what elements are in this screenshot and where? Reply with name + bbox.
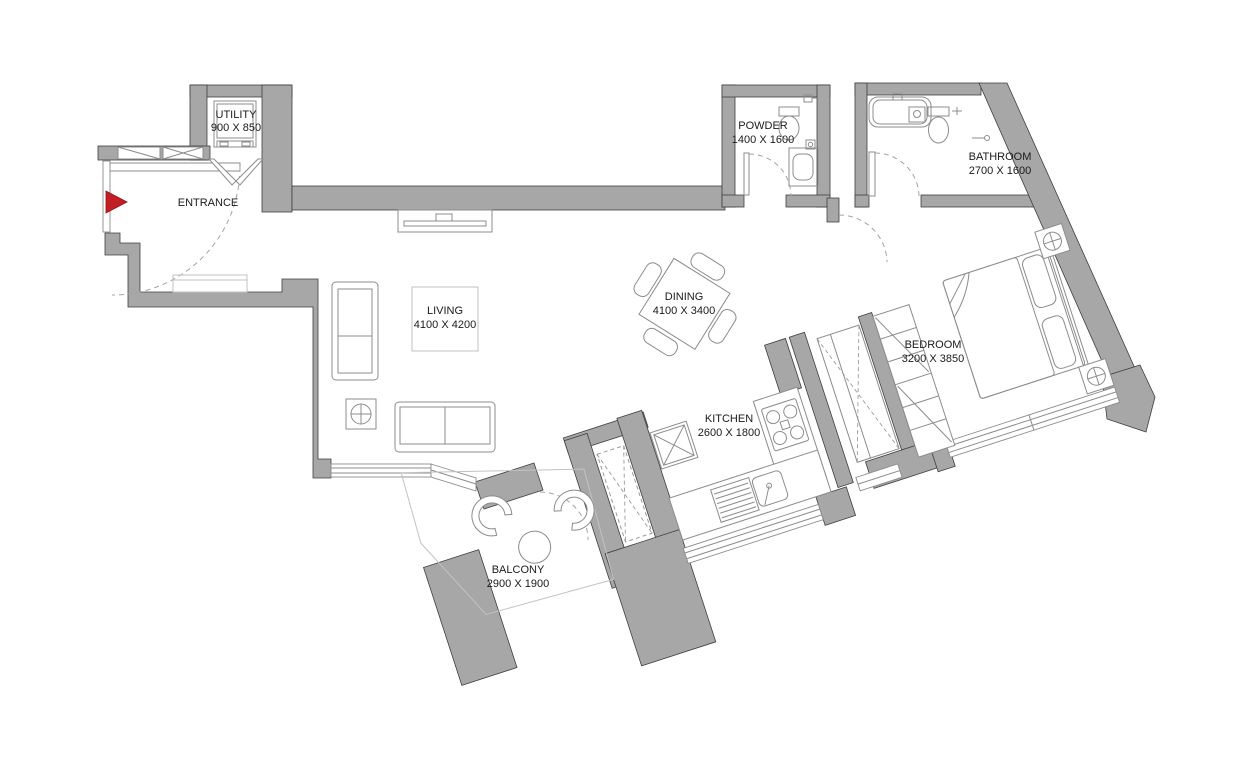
dining-label: DINING — [665, 291, 704, 303]
tissue-holder-icon — [808, 142, 812, 146]
wall-powder-left — [722, 85, 735, 207]
floorplan-canvas: UTILITY 900 X 850 ENTRANCE POWDER 1400 X… — [0, 0, 1241, 758]
wall-powder-bottom-right — [786, 195, 830, 207]
wall-bathroom-left — [855, 83, 867, 207]
bedroom-door-arc — [839, 215, 887, 262]
entrance-area — [106, 147, 247, 295]
bathroom-door-arc — [875, 153, 919, 197]
balcony-label: BALCONY — [492, 564, 545, 576]
bedroom-window-line — [949, 398, 1118, 453]
wall-bathroom-bottom-left — [855, 195, 869, 207]
living-window — [331, 464, 431, 477]
living-dims: 4100 X 4200 — [414, 319, 476, 331]
bathtub-inner — [873, 100, 927, 124]
balcony-dims: 2900 X 1900 — [487, 578, 549, 590]
wall-lower-left — [105, 233, 331, 478]
bathroom-dims: 2700 X 1600 — [969, 165, 1031, 177]
sofa-left — [332, 282, 378, 380]
powder-dims: 1400 X 1600 — [732, 134, 794, 146]
toilet-tank — [779, 107, 799, 116]
bathroom-sink — [909, 107, 925, 122]
wall-bathroom-top — [855, 83, 981, 95]
dining-dims: 4100 X 3400 — [653, 305, 715, 317]
living-label: LIVING — [427, 305, 463, 317]
bedroom-window-line — [947, 392, 1116, 447]
washer-knob — [242, 142, 250, 146]
toilet-bowl — [929, 117, 949, 143]
bathroom-sink-basin — [914, 111, 921, 118]
living-room — [332, 210, 495, 452]
powder-door-arc — [749, 154, 791, 196]
tv — [404, 221, 486, 226]
wall-main-top — [292, 186, 725, 210]
bedroom-label: BEDROOM — [905, 339, 962, 351]
wall-powder-top — [722, 85, 830, 97]
floorplan-svg: UTILITY 900 X 850 ENTRANCE POWDER 1400 X… — [0, 0, 1241, 758]
washer-knob — [220, 142, 228, 146]
entry-arrow-icon — [106, 191, 127, 213]
wall-corridor-stub — [827, 198, 839, 222]
bedroom-window — [945, 387, 1119, 457]
kitchen-label: KITCHEN — [705, 413, 753, 425]
utility-label: UTILITY — [216, 109, 258, 121]
shower-mixer-icon — [985, 136, 990, 141]
bathroom — [869, 94, 990, 197]
bedroom-dims: 3200 X 3850 — [902, 353, 964, 365]
bathroom-label: BATHROOM — [969, 151, 1032, 163]
wall-utility-right — [262, 85, 292, 212]
wall-powder-right — [817, 85, 830, 207]
entrance-label: ENTRANCE — [178, 197, 239, 209]
wall-bathroom-bottom-right — [921, 195, 1042, 207]
vanity-basin — [793, 154, 813, 180]
kitchen-dims: 2600 X 1800 — [698, 427, 760, 439]
powder-label: POWDER — [738, 120, 788, 132]
tv-box — [436, 214, 452, 221]
balcony-table — [515, 527, 555, 567]
powder-door-leaf — [744, 153, 749, 195]
wall-powder-bottom-left — [722, 195, 744, 207]
utility-dims: 900 X 850 — [211, 122, 261, 134]
hall-sideboard — [173, 275, 247, 292]
bathroom-door-leaf — [869, 152, 875, 196]
